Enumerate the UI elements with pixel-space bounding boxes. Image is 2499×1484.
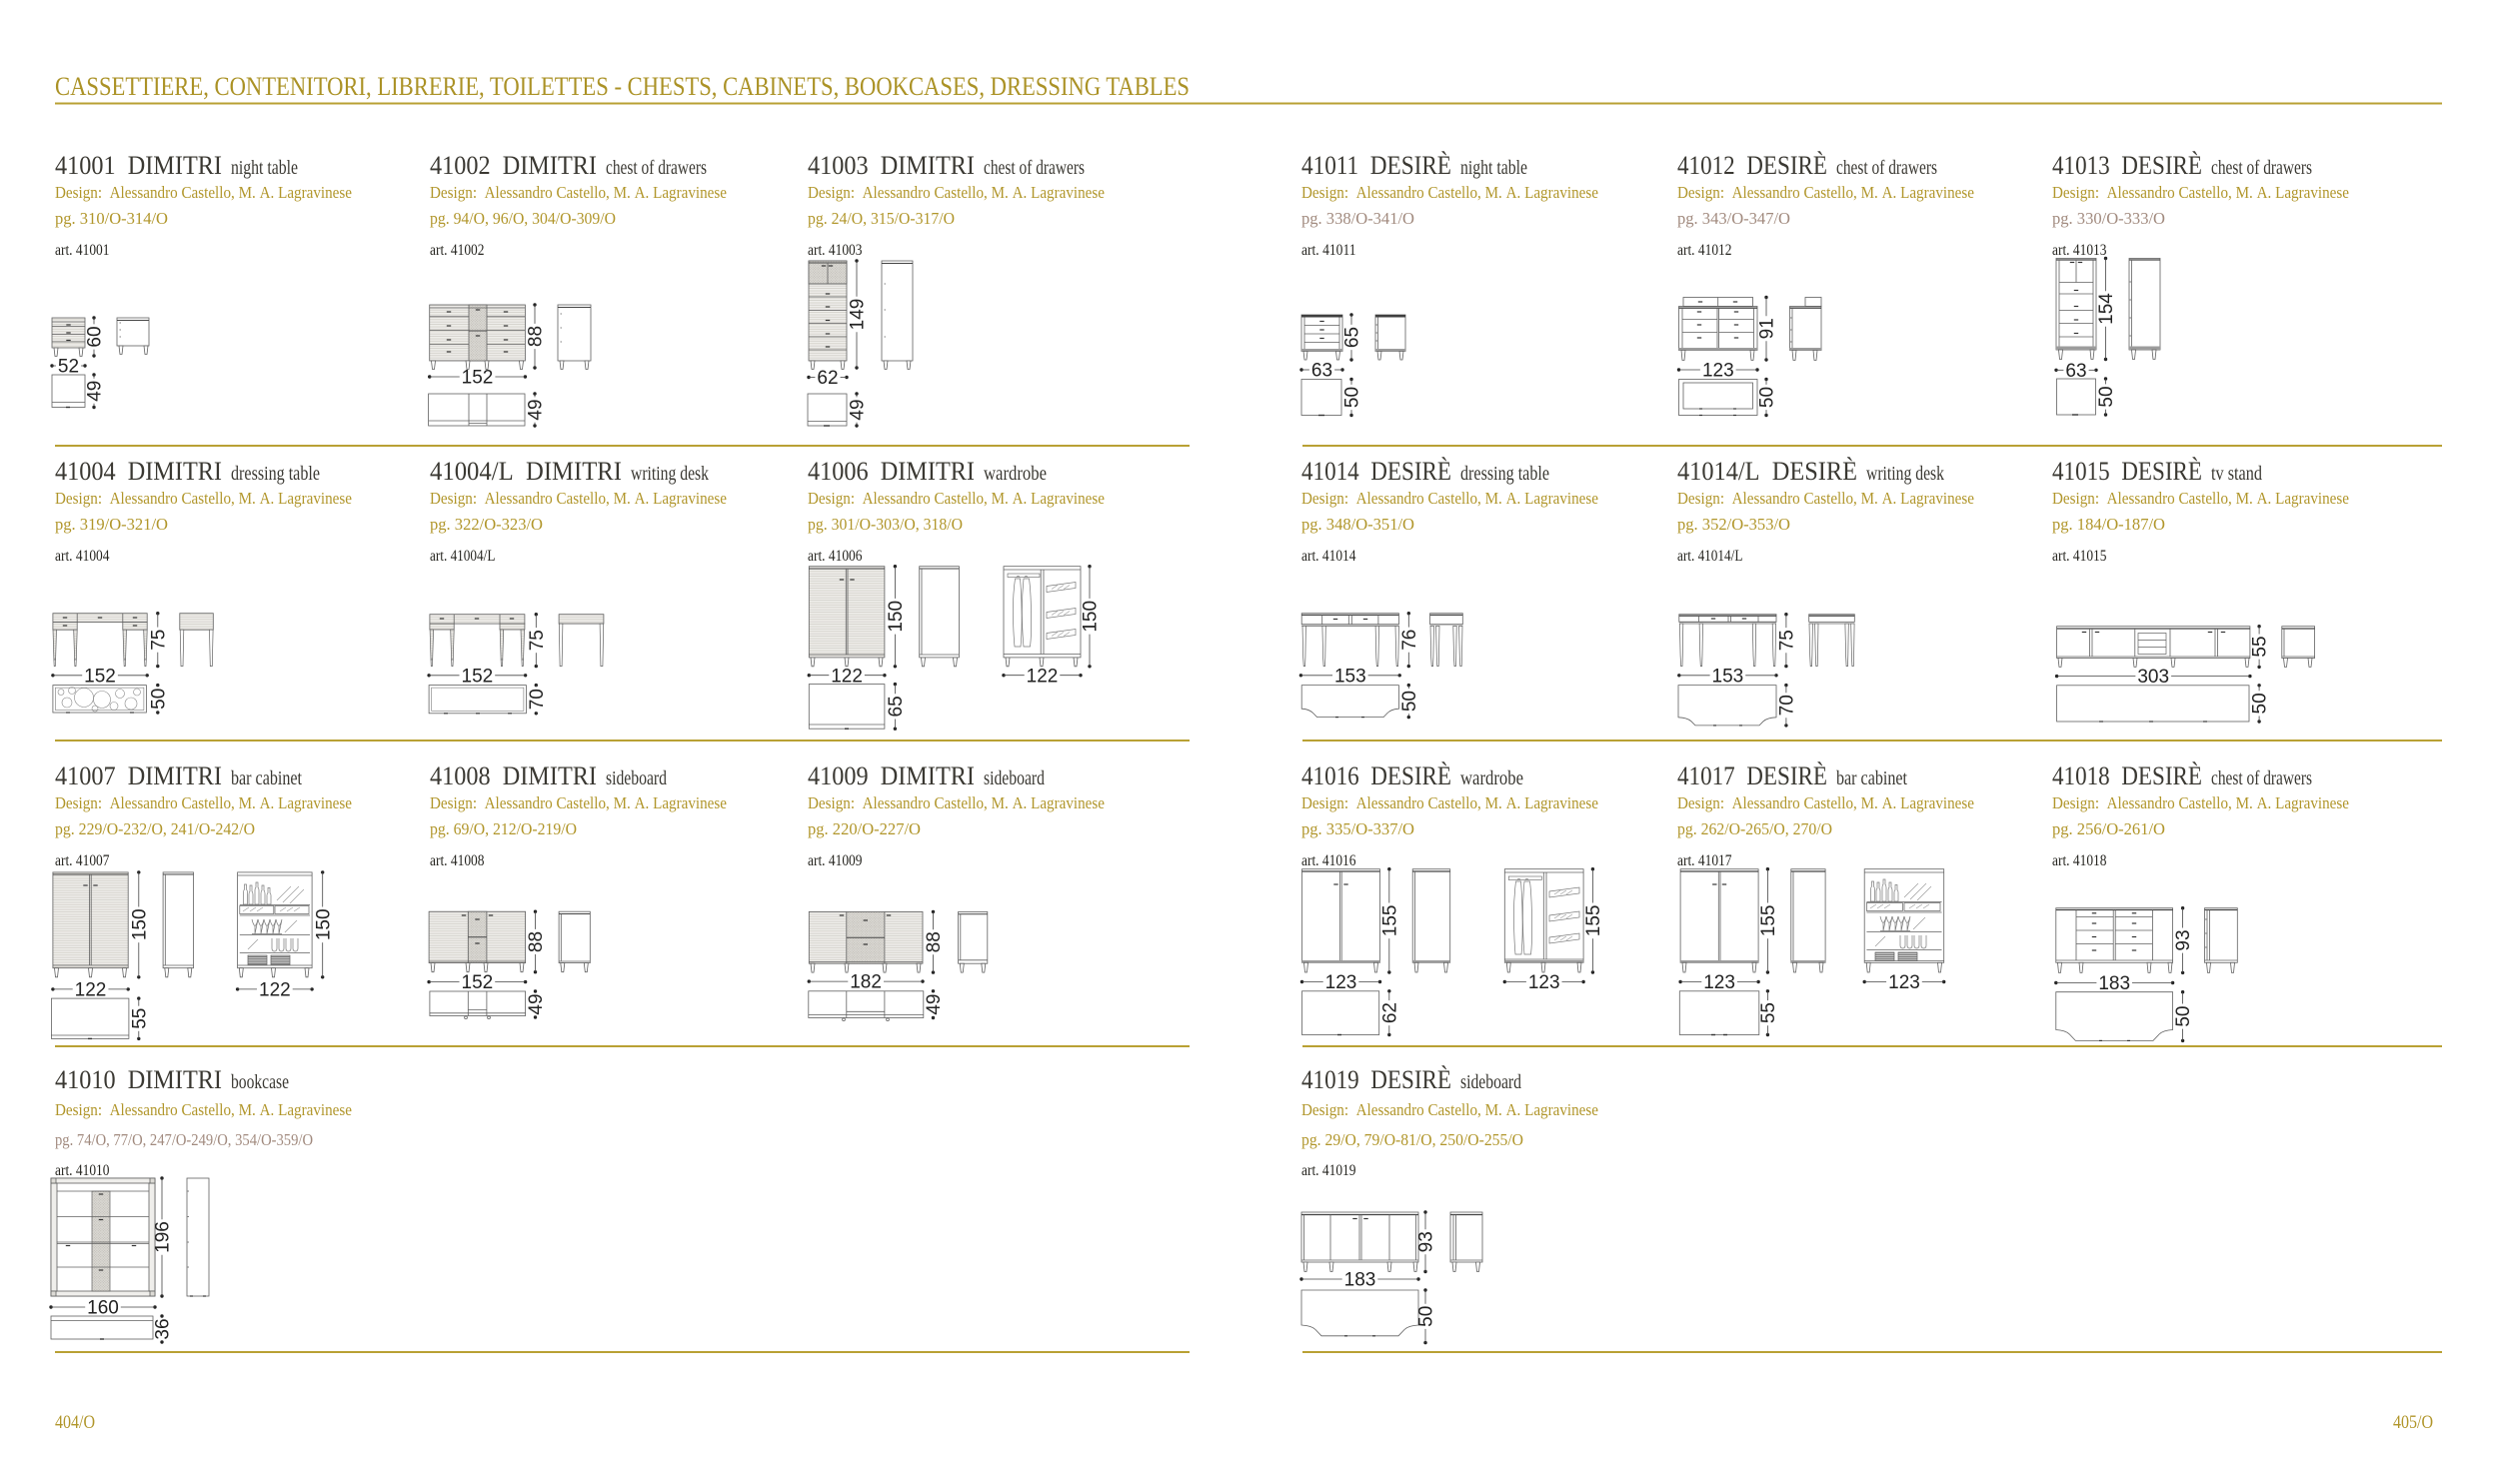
svg-text:Design: Alessandro Castello,: Design: Alessandro Castello, M. A. Lagra… — [430, 489, 727, 508]
svg-text:pg. 322/O-323/O: pg. 322/O-323/O — [430, 515, 543, 534]
svg-text:Design: Alessandro Castello,: Design: Alessandro Castello, M. A. Lagra… — [55, 183, 352, 202]
svg-text:182: 182 — [850, 972, 882, 993]
svg-text:Design: Alessandro Castello,: Design: Alessandro Castello, M. A. Lagra… — [55, 489, 352, 508]
svg-text:50: 50 — [1399, 691, 1420, 712]
svg-text:41017 DESIRÈ: 41017 DESIRÈ — [1677, 760, 1827, 790]
svg-text:tv stand: tv stand — [2211, 464, 2262, 485]
svg-text:pg. 256/O-261/O: pg. 256/O-261/O — [2052, 819, 2165, 838]
svg-text:50: 50 — [2173, 1006, 2194, 1027]
svg-text:49: 49 — [526, 399, 547, 420]
svg-text:pg. 338/O-341/O: pg. 338/O-341/O — [1301, 209, 1414, 228]
svg-text:art. 41016: art. 41016 — [1301, 852, 1356, 869]
svg-text:bar cabinet: bar cabinet — [231, 768, 302, 789]
svg-text:41007 DIMITRI: 41007 DIMITRI — [55, 760, 222, 790]
svg-text:93: 93 — [2173, 929, 2194, 950]
svg-text:49: 49 — [924, 994, 945, 1015]
svg-text:chest of drawers: chest of drawers — [1836, 158, 1937, 179]
svg-text:pg. 310/O-314/O: pg. 310/O-314/O — [55, 209, 168, 228]
svg-text:75: 75 — [527, 630, 548, 651]
svg-text:41012 DESIRÈ: 41012 DESIRÈ — [1677, 150, 1827, 180]
svg-text:Design: Alessandro Castello,: Design: Alessandro Castello, M. A. Lagra… — [1677, 793, 1974, 812]
svg-text:36: 36 — [153, 1318, 174, 1339]
svg-text:93: 93 — [1416, 1231, 1437, 1252]
svg-text:65: 65 — [886, 696, 907, 717]
svg-text:65: 65 — [1342, 327, 1363, 348]
svg-text:pg. 69/O, 212/O-219/O: pg. 69/O, 212/O-219/O — [430, 819, 577, 838]
svg-text:art. 41007: art. 41007 — [55, 852, 110, 869]
svg-text:88: 88 — [526, 326, 547, 347]
svg-text:Design: Alessandro Castello,: Design: Alessandro Castello, M. A. Lagra… — [430, 793, 727, 812]
svg-text:123: 123 — [1888, 972, 1920, 993]
svg-text:55: 55 — [2250, 636, 2271, 657]
svg-text:pg. 220/O-227/O: pg. 220/O-227/O — [808, 819, 921, 838]
svg-text:pg. 184/O-187/O: pg. 184/O-187/O — [2052, 515, 2165, 534]
svg-text:41013 DESIRÈ: 41013 DESIRÈ — [2052, 150, 2202, 180]
svg-text:41009 DIMITRI: 41009 DIMITRI — [808, 760, 975, 790]
svg-text:Design: Alessandro Castello,: Design: Alessandro Castello, M. A. Lagra… — [2052, 183, 2349, 202]
svg-text:night table: night table — [231, 158, 298, 179]
svg-text:pg. 301/O-303/O, 318/O: pg. 301/O-303/O, 318/O — [808, 515, 963, 534]
svg-text:50: 50 — [2250, 693, 2271, 714]
svg-text:183: 183 — [2098, 973, 2130, 994]
svg-text:63: 63 — [1311, 361, 1332, 382]
svg-text:123: 123 — [1528, 972, 1560, 993]
svg-text:sideboard: sideboard — [1460, 1072, 1521, 1093]
svg-text:art. 41006: art. 41006 — [808, 548, 863, 565]
svg-text:art. 41017: art. 41017 — [1677, 852, 1732, 869]
svg-text:41015 DESIRÈ: 41015 DESIRÈ — [2052, 456, 2202, 486]
svg-text:art. 41011: art. 41011 — [1301, 242, 1356, 259]
svg-text:pg. 94/O, 96/O, 304/O-309/O: pg. 94/O, 96/O, 304/O-309/O — [430, 209, 616, 228]
svg-text:art. 41013: art. 41013 — [2052, 242, 2107, 259]
svg-text:writing desk: writing desk — [1866, 464, 1944, 485]
svg-text:art. 41014/L: art. 41014/L — [1677, 548, 1742, 565]
svg-text:pg. 348/O-351/O: pg. 348/O-351/O — [1301, 515, 1414, 534]
svg-text:Design: Alessandro Castello,: Design: Alessandro Castello, M. A. Lagra… — [808, 183, 1105, 202]
svg-text:49: 49 — [848, 399, 869, 420]
svg-text:bookcase: bookcase — [231, 1072, 289, 1093]
svg-text:50: 50 — [148, 689, 169, 710]
svg-text:153: 153 — [1712, 666, 1744, 687]
svg-text:Design: Alessandro Castello,: Design: Alessandro Castello, M. A. Lagra… — [1301, 1100, 1598, 1119]
svg-text:41018 DESIRÈ: 41018 DESIRÈ — [2052, 760, 2202, 790]
svg-text:55: 55 — [1758, 1002, 1779, 1023]
svg-text:chest of drawers: chest of drawers — [2211, 158, 2312, 179]
svg-text:50: 50 — [1342, 387, 1363, 408]
svg-text:75: 75 — [148, 630, 169, 651]
svg-text:41003 DIMITRI: 41003 DIMITRI — [808, 150, 975, 180]
svg-text:152: 152 — [84, 666, 116, 687]
svg-text:pg. 74/O, 77/O, 247/O-249/O, 3: pg. 74/O, 77/O, 247/O-249/O, 354/O-359/O — [55, 1130, 313, 1149]
svg-text:155: 155 — [1583, 905, 1604, 937]
svg-text:88: 88 — [924, 931, 945, 952]
svg-text:152: 152 — [462, 666, 494, 687]
svg-text:122: 122 — [1027, 666, 1059, 687]
svg-text:dressing table: dressing table — [1460, 464, 1549, 485]
svg-text:41016 DESIRÈ: 41016 DESIRÈ — [1301, 760, 1451, 790]
svg-text:55: 55 — [129, 1008, 150, 1029]
svg-text:154: 154 — [2096, 293, 2117, 325]
svg-text:50: 50 — [1416, 1306, 1437, 1327]
svg-text:41002 DIMITRI: 41002 DIMITRI — [430, 150, 597, 180]
svg-text:pg. 343/O-347/O: pg. 343/O-347/O — [1677, 209, 1790, 228]
svg-text:41008 DIMITRI: 41008 DIMITRI — [430, 760, 597, 790]
svg-text:149: 149 — [848, 299, 869, 331]
svg-text:196: 196 — [153, 1221, 174, 1253]
svg-text:152: 152 — [462, 972, 494, 993]
svg-text:chest of drawers: chest of drawers — [2211, 768, 2312, 789]
svg-text:91: 91 — [1757, 318, 1778, 339]
svg-text:wardrobe: wardrobe — [984, 464, 1047, 485]
svg-text:Design: Alessandro Castello,: Design: Alessandro Castello, M. A. Lagra… — [808, 793, 1105, 812]
svg-text:pg. 229/O-232/O, 241/O-242/O: pg. 229/O-232/O, 241/O-242/O — [55, 819, 255, 838]
svg-text:night table: night table — [1460, 158, 1527, 179]
svg-text:pg. 352/O-353/O: pg. 352/O-353/O — [1677, 515, 1790, 534]
svg-text:70: 70 — [527, 689, 548, 710]
svg-text:41011 DESIRÈ: 41011 DESIRÈ — [1301, 150, 1451, 180]
svg-text:88: 88 — [526, 931, 547, 952]
svg-text:art. 41019: art. 41019 — [1301, 1162, 1356, 1179]
svg-text:pg. 24/O, 315/O-317/O: pg. 24/O, 315/O-317/O — [808, 209, 955, 228]
svg-text:Design: Alessandro Castello,: Design: Alessandro Castello, M. A. Lagra… — [1301, 793, 1598, 812]
svg-text:41010 DIMITRI: 41010 DIMITRI — [55, 1064, 222, 1094]
svg-text:41014/L DESIRÈ: 41014/L DESIRÈ — [1677, 456, 1857, 486]
svg-text:153: 153 — [1334, 666, 1366, 687]
svg-text:Design: Alessandro Castello,: Design: Alessandro Castello, M. A. Lagra… — [1677, 183, 1974, 202]
svg-text:art. 41008: art. 41008 — [430, 852, 485, 869]
svg-text:404/O: 404/O — [55, 1412, 95, 1433]
svg-text:Design: Alessandro Castello,: Design: Alessandro Castello, M. A. Lagra… — [1301, 183, 1598, 202]
svg-text:41001 DIMITRI: 41001 DIMITRI — [55, 150, 222, 180]
svg-text:art. 41002: art. 41002 — [430, 242, 485, 259]
svg-text:pg. 319/O-321/O: pg. 319/O-321/O — [55, 515, 168, 534]
svg-text:Design: Alessandro Castello,: Design: Alessandro Castello, M. A. Lagra… — [55, 1100, 352, 1119]
svg-text:122: 122 — [75, 980, 107, 1001]
svg-text:123: 123 — [1702, 361, 1734, 382]
svg-text:150: 150 — [886, 601, 907, 633]
svg-text:art. 41014: art. 41014 — [1301, 548, 1356, 565]
svg-text:Design: Alessandro Castello,: Design: Alessandro Castello, M. A. Lagra… — [1677, 489, 1974, 508]
svg-text:303: 303 — [2137, 667, 2169, 688]
svg-text:60: 60 — [85, 326, 106, 347]
svg-text:art. 41012: art. 41012 — [1677, 242, 1732, 259]
svg-text:pg. 29/O, 79/O-81/O, 250/O-255: pg. 29/O, 79/O-81/O, 250/O-255/O — [1301, 1130, 1523, 1149]
svg-text:160: 160 — [87, 1298, 119, 1319]
svg-text:chest of drawers: chest of drawers — [984, 158, 1085, 179]
svg-text:50: 50 — [1757, 387, 1778, 408]
svg-text:183: 183 — [1344, 1270, 1376, 1291]
svg-text:41014 DESIRÈ: 41014 DESIRÈ — [1301, 456, 1451, 486]
svg-text:Design: Alessandro Castello,: Design: Alessandro Castello, M. A. Lagra… — [808, 489, 1105, 508]
svg-text:122: 122 — [259, 980, 291, 1001]
svg-text:sideboard: sideboard — [606, 768, 667, 789]
svg-text:art. 41001: art. 41001 — [55, 242, 110, 259]
svg-text:41004 DIMITRI: 41004 DIMITRI — [55, 456, 222, 486]
svg-text:62: 62 — [817, 368, 838, 389]
svg-text:art. 41010: art. 41010 — [55, 1162, 110, 1179]
svg-text:dressing table: dressing table — [231, 464, 320, 485]
svg-text:Design: Alessandro Castello,: Design: Alessandro Castello, M. A. Lagra… — [2052, 793, 2349, 812]
svg-text:pg. 335/O-337/O: pg. 335/O-337/O — [1301, 819, 1414, 838]
svg-text:150: 150 — [313, 908, 334, 940]
svg-text:bar cabinet: bar cabinet — [1836, 768, 1907, 789]
svg-text:art. 41009: art. 41009 — [808, 852, 863, 869]
svg-text:123: 123 — [1703, 972, 1735, 993]
svg-text:62: 62 — [1379, 1002, 1400, 1023]
svg-text:art. 41018: art. 41018 — [2052, 852, 2107, 869]
svg-text:150: 150 — [1081, 601, 1102, 633]
svg-text:pg. 262/O-265/O, 270/O: pg. 262/O-265/O, 270/O — [1677, 819, 1832, 838]
svg-text:41019 DESIRÈ: 41019 DESIRÈ — [1301, 1064, 1451, 1094]
svg-text:Design: Alessandro Castello,: Design: Alessandro Castello, M. A. Lagra… — [1301, 489, 1598, 508]
svg-text:49: 49 — [85, 381, 106, 402]
svg-text:sideboard: sideboard — [984, 768, 1045, 789]
svg-text:155: 155 — [1379, 905, 1400, 937]
svg-text:49: 49 — [526, 993, 547, 1014]
svg-text:405/O: 405/O — [2393, 1412, 2433, 1433]
svg-text:Design: Alessandro Castello,: Design: Alessandro Castello, M. A. Lagra… — [2052, 489, 2349, 508]
svg-text:wardrobe: wardrobe — [1460, 768, 1523, 789]
svg-text:76: 76 — [1399, 630, 1420, 651]
svg-text:art. 41015: art. 41015 — [2052, 548, 2107, 565]
svg-text:41006 DIMITRI: 41006 DIMITRI — [808, 456, 975, 486]
svg-text:Design: Alessandro Castello,: Design: Alessandro Castello, M. A. Lagra… — [55, 793, 352, 812]
svg-text:150: 150 — [129, 908, 150, 940]
svg-text:art. 41004/L: art. 41004/L — [430, 548, 495, 565]
svg-text:75: 75 — [1777, 630, 1798, 651]
svg-text:152: 152 — [462, 368, 494, 389]
svg-text:CASSETTIERE, CONTENITORI, LIBR: CASSETTIERE, CONTENITORI, LIBRERIE, TOIL… — [55, 72, 1190, 101]
svg-text:chest of drawers: chest of drawers — [606, 158, 707, 179]
svg-text:70: 70 — [1777, 695, 1798, 716]
svg-text:writing desk: writing desk — [631, 464, 709, 485]
svg-text:122: 122 — [831, 666, 863, 687]
svg-text:52: 52 — [58, 357, 79, 378]
svg-text:155: 155 — [1758, 905, 1779, 937]
svg-text:50: 50 — [2096, 386, 2117, 407]
svg-text:41004/L DIMITRI: 41004/L DIMITRI — [430, 456, 622, 486]
svg-text:art. 41004: art. 41004 — [55, 548, 110, 565]
svg-text:pg. 330/O-333/O: pg. 330/O-333/O — [2052, 209, 2165, 228]
svg-text:art. 41003: art. 41003 — [808, 242, 863, 259]
svg-text:Design: Alessandro Castello,: Design: Alessandro Castello, M. A. Lagra… — [430, 183, 727, 202]
svg-text:123: 123 — [1325, 972, 1357, 993]
